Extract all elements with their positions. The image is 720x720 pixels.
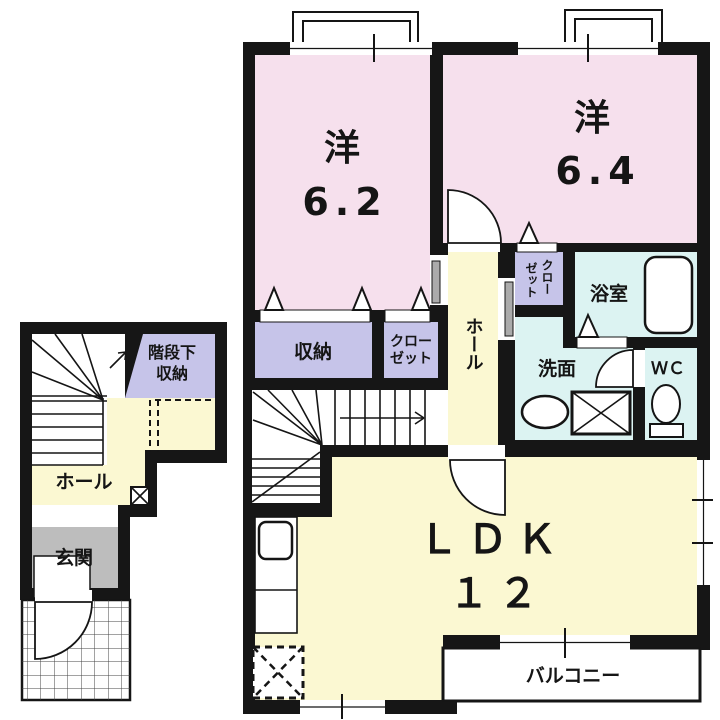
refrigerator-space [253, 647, 303, 698]
understairs-label-line2: 収納 [156, 364, 188, 383]
storage-label: 収納 [294, 340, 332, 363]
washing-machine-pan [572, 392, 630, 434]
room-closet [384, 322, 438, 378]
washbasin [522, 396, 568, 428]
entrance-step [32, 505, 118, 527]
ldk-size: １２ [449, 571, 547, 617]
hall-door-bedroom1 [430, 255, 448, 305]
washroom-label: 洗面 [538, 357, 576, 380]
bathtub [645, 257, 692, 333]
closet-label-line1: クロー [390, 334, 432, 350]
entrance-porch [22, 590, 130, 700]
second-floor-plan: 洋 6.2 洋 6.4 収納 クロー ゼット ホール クロー ゼット 浴室 洗面… [243, 10, 713, 719]
bay-window-boxes [293, 10, 662, 44]
first-floor-plan: 階段下 収納 ホール 玄関 [20, 322, 227, 700]
small-closet-col-left: ゼット [524, 261, 538, 298]
floor-plan-svg: 洋 6.2 洋 6.4 収納 クロー ゼット ホール クロー ゼット 浴室 洗面… [0, 0, 720, 720]
ldk-label: ＬＤＫ [419, 517, 566, 563]
room-small-closet [515, 252, 563, 305]
bedroom2-label: 洋 [574, 98, 610, 139]
bedroom1-label: 洋 [324, 128, 360, 169]
wc-label: ＷＣ [651, 359, 685, 379]
kitchen-counter [255, 517, 297, 633]
hall-2f-label: ホール [463, 317, 484, 371]
hall-door-washroom [498, 278, 515, 340]
bedroom2-size: 6.4 [555, 149, 640, 193]
entrance-label: 玄関 [55, 546, 93, 569]
understairs-label-line1: 階段下 [148, 343, 196, 362]
toilet [650, 385, 683, 437]
closet-label-line2: ゼット [390, 350, 432, 367]
bedroom1-size: 6.2 [302, 180, 387, 224]
small-closet-col-right: クロー [540, 259, 554, 295]
bathroom-label: 浴室 [590, 282, 628, 305]
panel-box [131, 487, 149, 505]
hall-opening-stairs [430, 390, 448, 445]
balcony-label: バルコニー [526, 665, 621, 687]
hall-1f-area-a [107, 398, 215, 450]
room-ldk-a [332, 457, 443, 700]
hall-1f-label: ホール [55, 471, 112, 493]
floor-plan-canvas: 洋 6.2 洋 6.4 収納 クロー ゼット ホール クロー ゼット 浴室 洗面… [0, 0, 720, 720]
kitchen-sink [259, 522, 292, 559]
